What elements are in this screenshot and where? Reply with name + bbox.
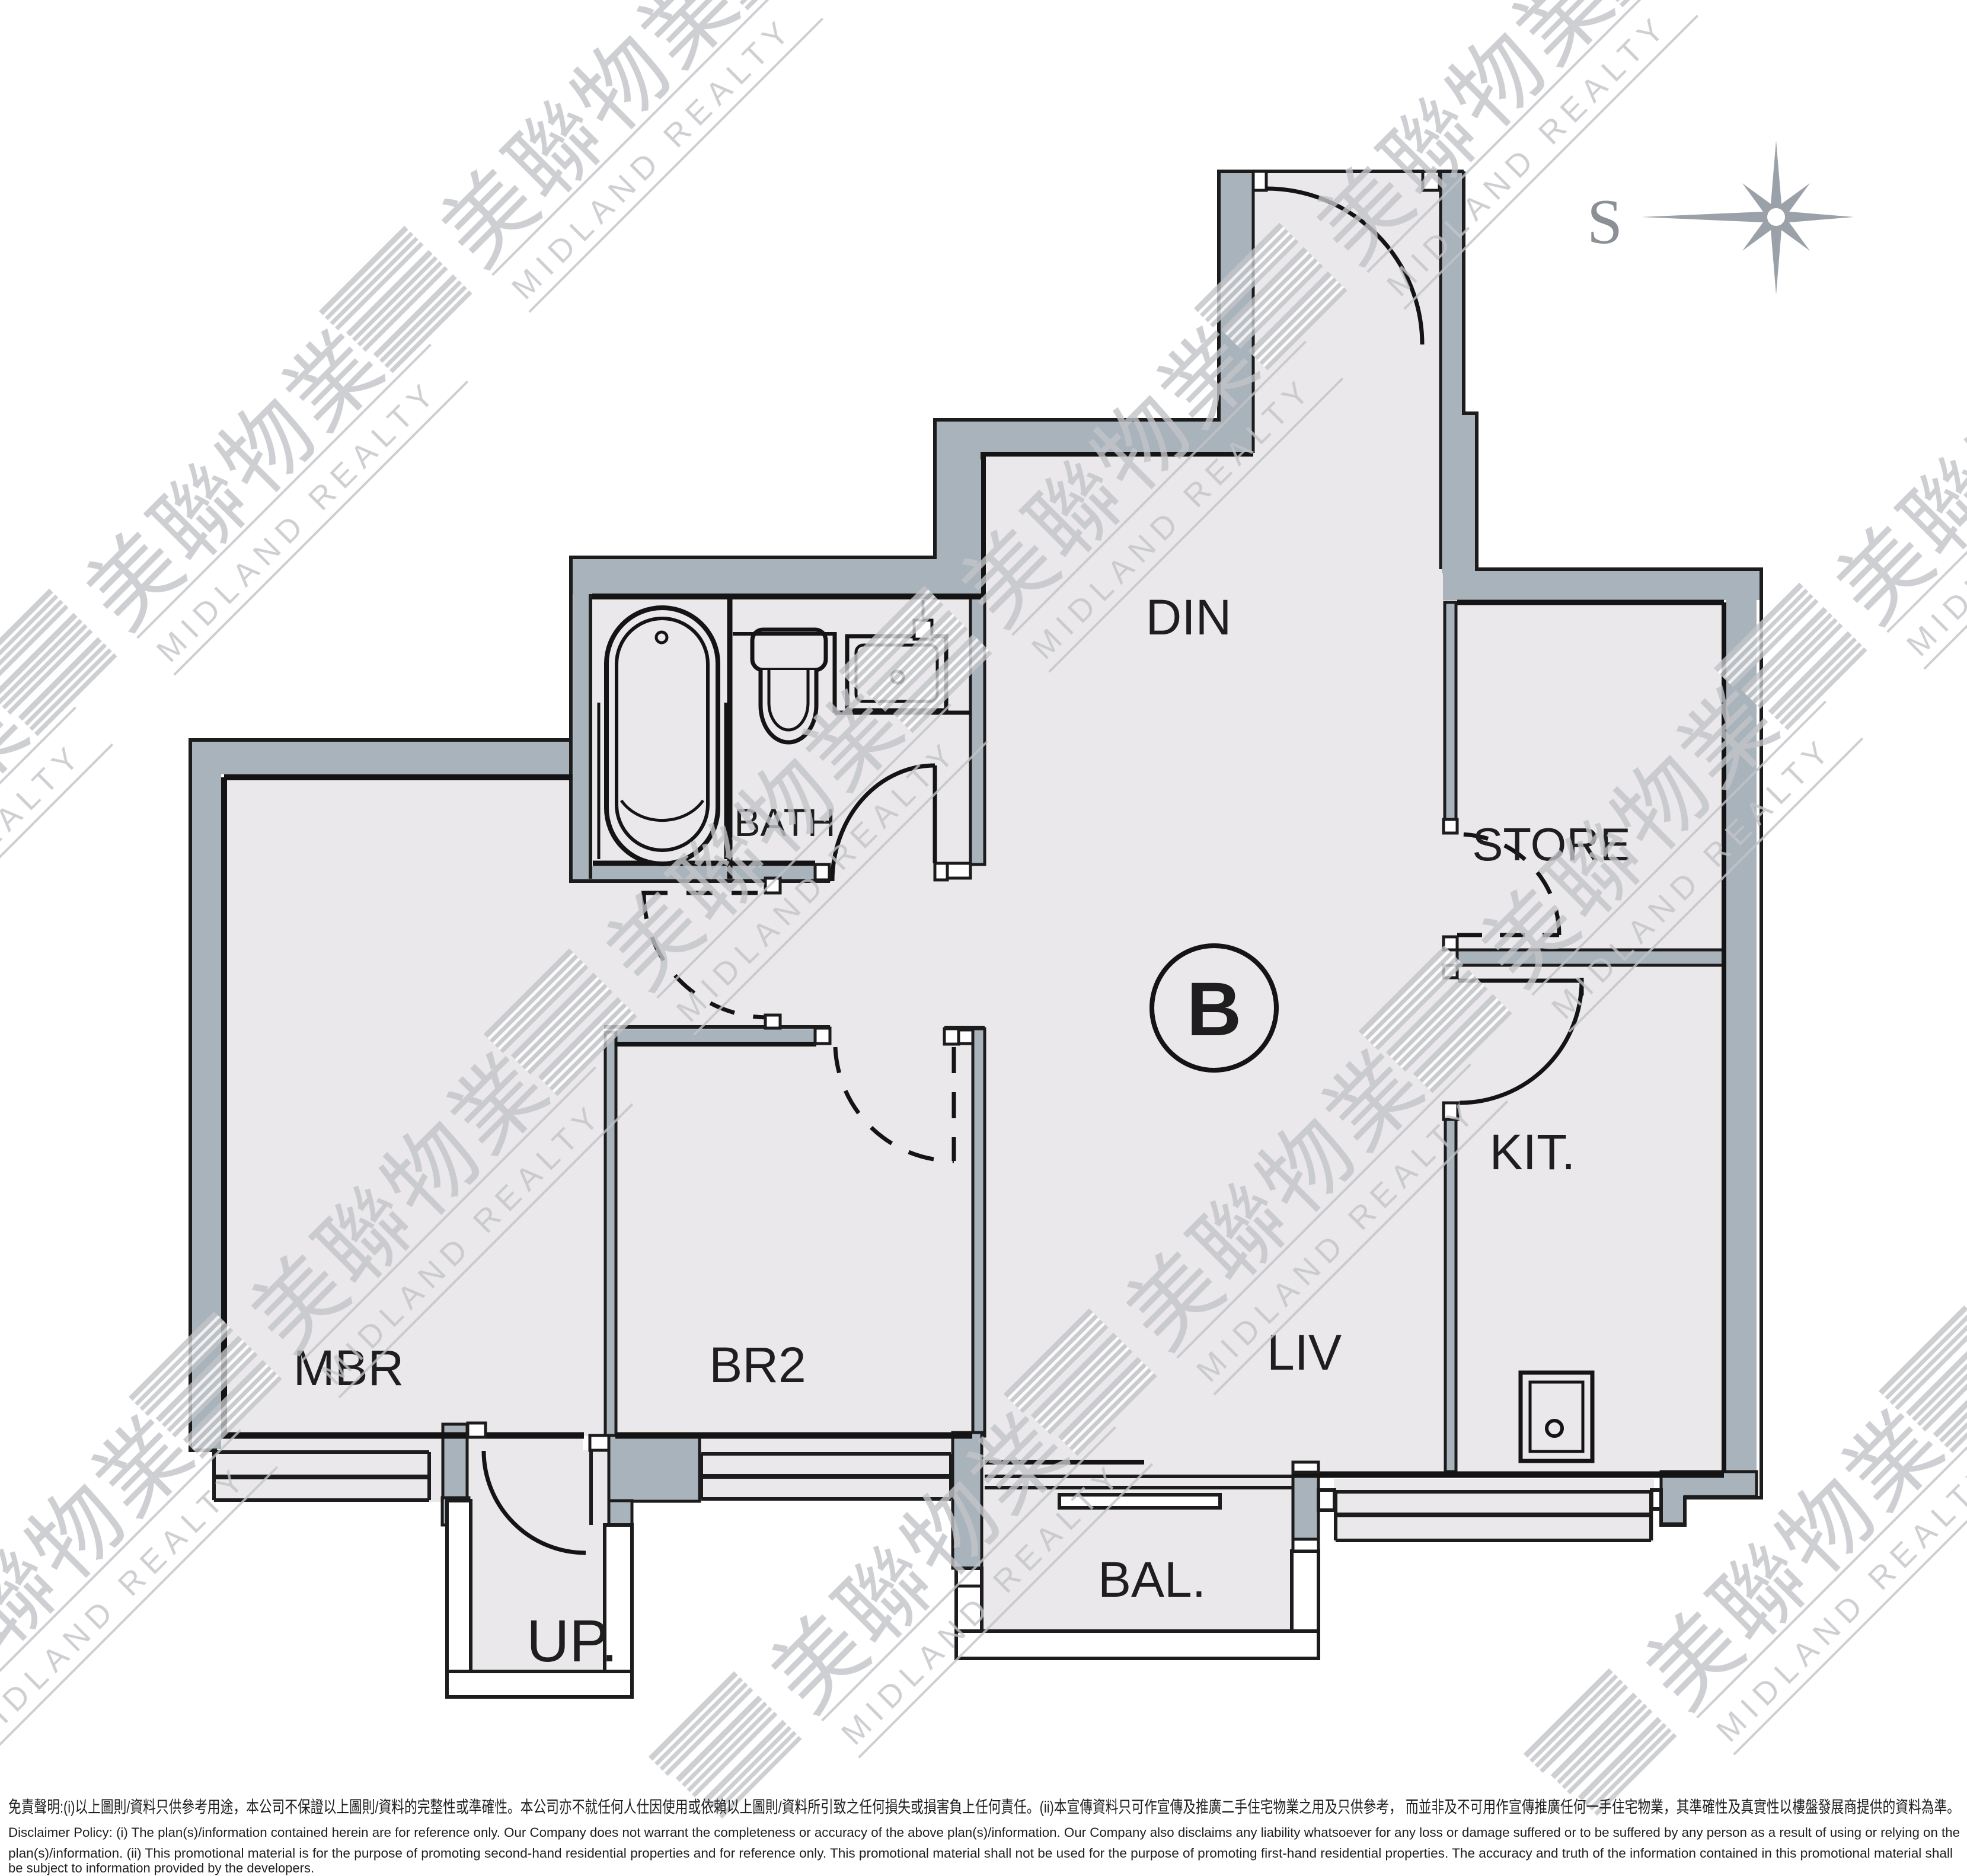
svg-text:UP.: UP. <box>526 1608 618 1674</box>
svg-text:KIT.: KIT. <box>1490 1124 1576 1180</box>
svg-text:S: S <box>1587 187 1623 257</box>
svg-text:be subject to information prov: be subject to information provided by th… <box>8 1861 314 1875</box>
svg-text:BR2: BR2 <box>709 1337 806 1393</box>
svg-text:plan(s)/information. (ii) This: plan(s)/information. (ii) This promotion… <box>8 1846 1953 1861</box>
svg-text:免責聲明:(i)以上圖則/資料只供參考用途，本公司不保證以上: 免責聲明:(i)以上圖則/資料只供參考用途，本公司不保證以上圖則/資料的完整性或… <box>8 1798 1960 1816</box>
svg-text:BAL.: BAL. <box>1098 1552 1206 1607</box>
svg-text:DIN: DIN <box>1146 589 1232 645</box>
svg-text:Disclaimer Policy: (i) The pla: Disclaimer Policy: (i) The plan(s)/infor… <box>8 1825 1960 1840</box>
svg-text:LIV: LIV <box>1267 1325 1342 1380</box>
svg-text:B: B <box>1187 967 1241 1052</box>
